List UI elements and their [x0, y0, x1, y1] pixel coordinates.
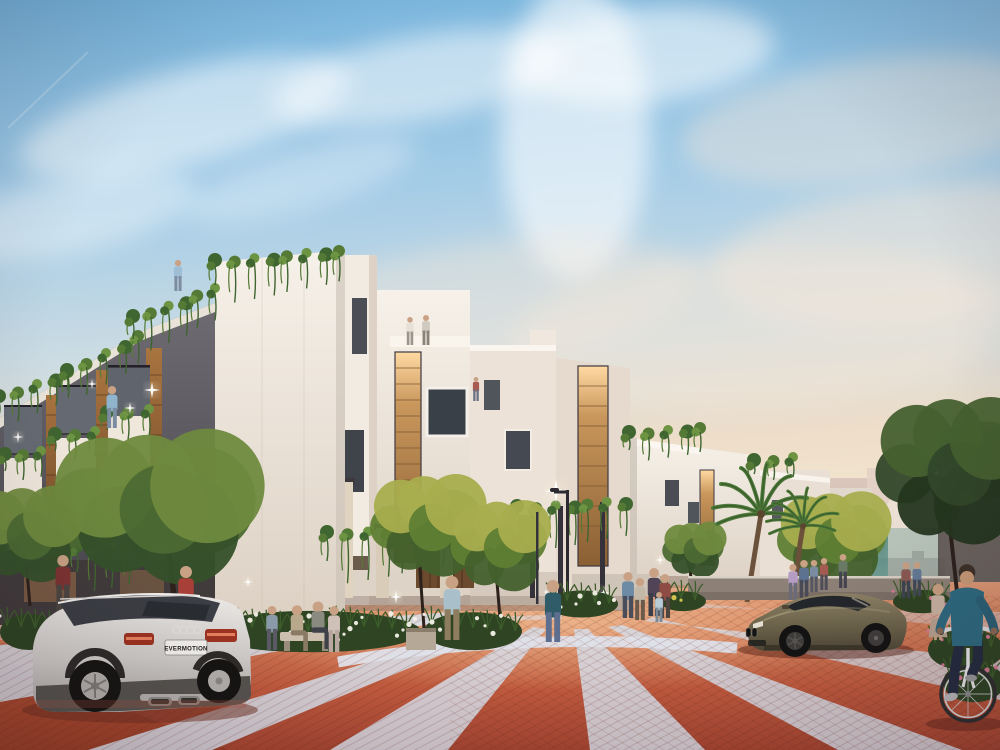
- rendered-scene: EVERMOTION: [0, 0, 1000, 750]
- vignette: [0, 0, 1000, 750]
